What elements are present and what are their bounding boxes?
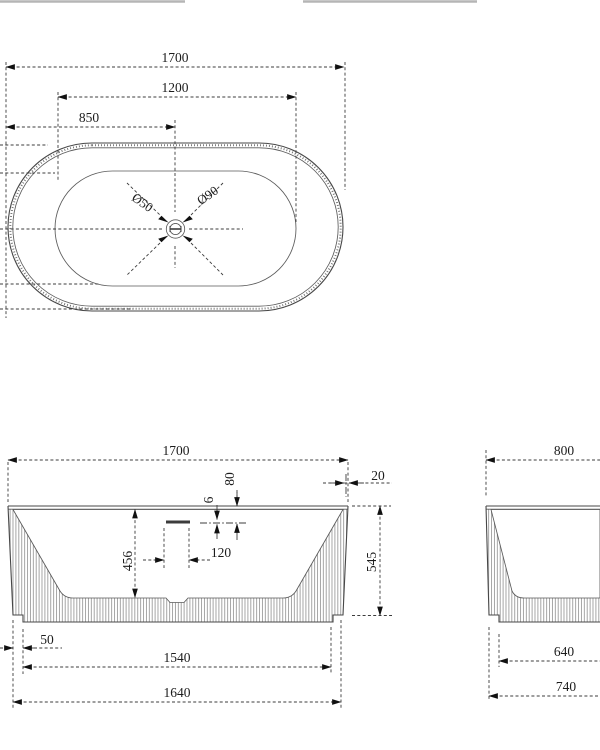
dim-label: 80 (222, 472, 237, 486)
dim-label: 1640 (164, 685, 191, 700)
dim-label: 800 (554, 443, 575, 458)
dim-top-length-overall: 1700 (6, 50, 344, 67)
overflow-diameter-label: Ø90 (194, 183, 221, 208)
drain-diameter-label: Ø50 (129, 190, 156, 215)
dim-label: 1540 (164, 650, 191, 665)
top-view: 1700 1200 850 Ø50 (0, 50, 345, 318)
dim-label: 50 (40, 632, 54, 647)
dim-label: 6 (201, 496, 216, 503)
dim-side-width-overall: 800 (486, 443, 600, 460)
dim-label: 1700 (162, 50, 189, 65)
dim-label: 740 (556, 679, 577, 694)
dim-front-height-overall: 545 (364, 506, 380, 616)
dim-front-rim-thickness: 20 (323, 468, 392, 483)
dim-front-base-outer: 1640 (13, 685, 341, 702)
dim-top-length-half: 850 (6, 110, 175, 127)
dim-side-base-outer: 740 (489, 679, 600, 696)
front-view: 1700 20 80 6 120 456 (0, 443, 392, 710)
dim-front-base-offset: 50 (0, 632, 62, 648)
dim-label: 545 (364, 552, 379, 573)
dim-side-base-inner: 640 (499, 644, 600, 661)
dim-label: 640 (554, 644, 575, 659)
dim-label: 20 (371, 468, 385, 483)
drawing-svg: 1700 1200 850 Ø50 (0, 0, 600, 750)
overflow-slot (166, 521, 190, 524)
dim-label: 456 (120, 551, 135, 572)
dim-front-length-overall: 1700 (8, 443, 348, 460)
technical-drawing-sheet: 1700 1200 850 Ø50 (0, 0, 600, 750)
dim-front-base-inner: 1540 (23, 650, 331, 667)
dim-label: 1200 (162, 80, 189, 95)
dim-label: 850 (79, 110, 100, 125)
dim-label: 120 (211, 545, 232, 560)
drain-symbol (166, 220, 184, 238)
dim-label: 1700 (163, 443, 190, 458)
dim-top-length-inner: 1200 (58, 80, 296, 97)
side-view: 800 640 740 (486, 443, 600, 701)
top-view-extension-lines (0, 62, 345, 318)
